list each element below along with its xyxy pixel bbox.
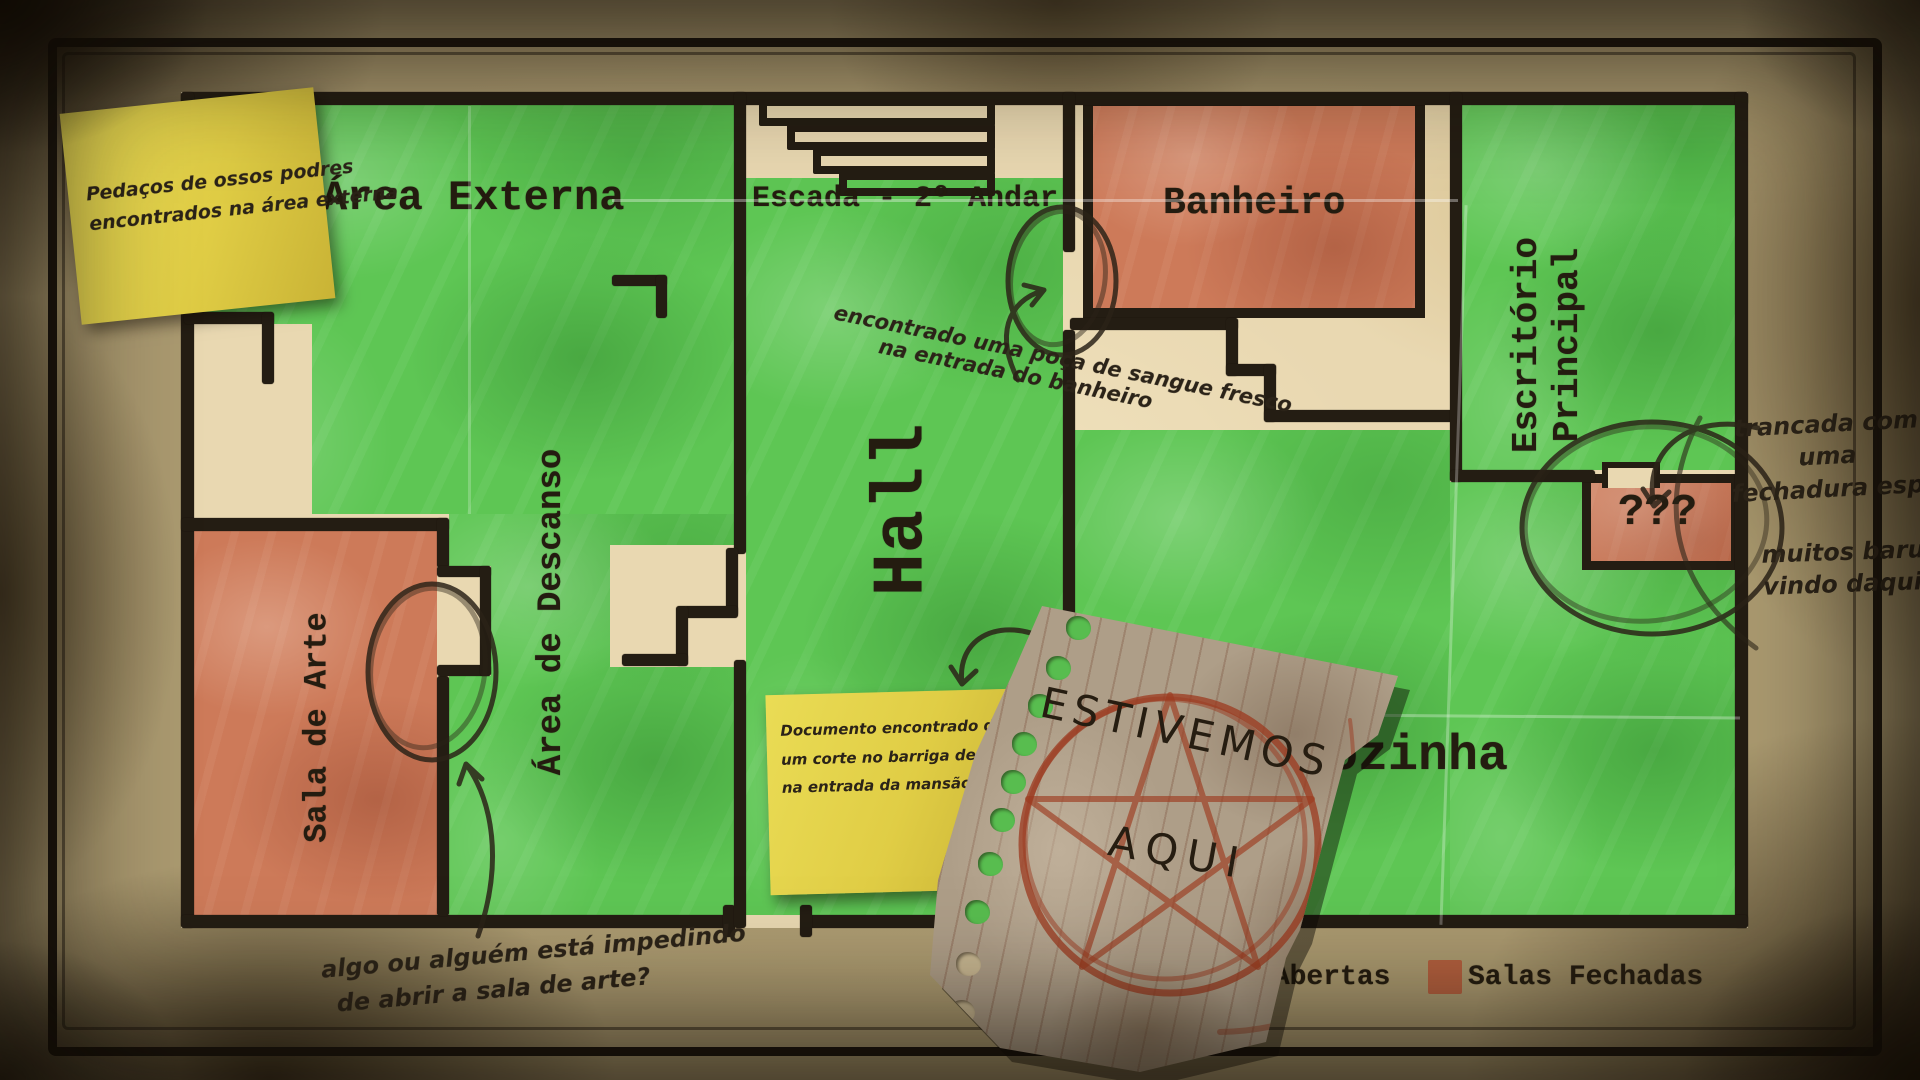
- legend-closed-label: Salas Fechadas: [1468, 962, 1703, 993]
- wall: [1070, 318, 1238, 330]
- wall: [1063, 92, 1075, 252]
- wall: [1264, 410, 1456, 422]
- wall: [734, 92, 746, 554]
- wall: [622, 654, 688, 666]
- wall: [656, 275, 667, 318]
- spiral-hole: [1066, 616, 1091, 640]
- label-banheiro: Banheiro: [1163, 182, 1345, 225]
- wall: [262, 312, 274, 384]
- spiral-hole: [990, 808, 1015, 832]
- label-sala-arte: Sala de Arte: [285, 585, 350, 870]
- wall: [437, 676, 449, 916]
- wall: [1735, 92, 1748, 928]
- paper-crease: [612, 199, 1458, 202]
- label-escritorio: Escritório Principal: [1490, 195, 1605, 495]
- spiral-hole: [1001, 770, 1026, 794]
- wall: [181, 518, 449, 531]
- wall: [437, 518, 449, 568]
- investigation-map-screen: Área Externa Escada - 2º Andar Banheiro …: [0, 0, 1920, 1080]
- label-area-descanso: Área de Descanso: [520, 422, 585, 802]
- locked-room-note: trancada com uma fechadura especial: [1728, 403, 1920, 510]
- spiral-hole: [956, 952, 981, 976]
- wall: [684, 606, 738, 618]
- label-hall: Hall: [865, 395, 940, 625]
- spiral-hole: [1046, 656, 1071, 680]
- spiral-hole: [1012, 732, 1037, 756]
- paper-crease: [468, 106, 471, 514]
- legend-closed-swatch: [1428, 960, 1462, 994]
- entrance-door-jamb: [800, 905, 812, 937]
- wall: [480, 566, 491, 676]
- wall: [184, 312, 274, 324]
- unknown-room-door-notch: [1602, 462, 1660, 488]
- label-unknown-room: ???: [1618, 488, 1697, 538]
- wall: [734, 660, 746, 928]
- spiral-hole: [965, 900, 990, 924]
- spiral-hole: [978, 852, 1003, 876]
- sticky-note-bones: Pedaços de ossos podres encontrados na á…: [60, 87, 336, 324]
- noises-note: muitos barulhos vindo daqui: [1761, 533, 1920, 603]
- externa-alcove: [184, 324, 312, 518]
